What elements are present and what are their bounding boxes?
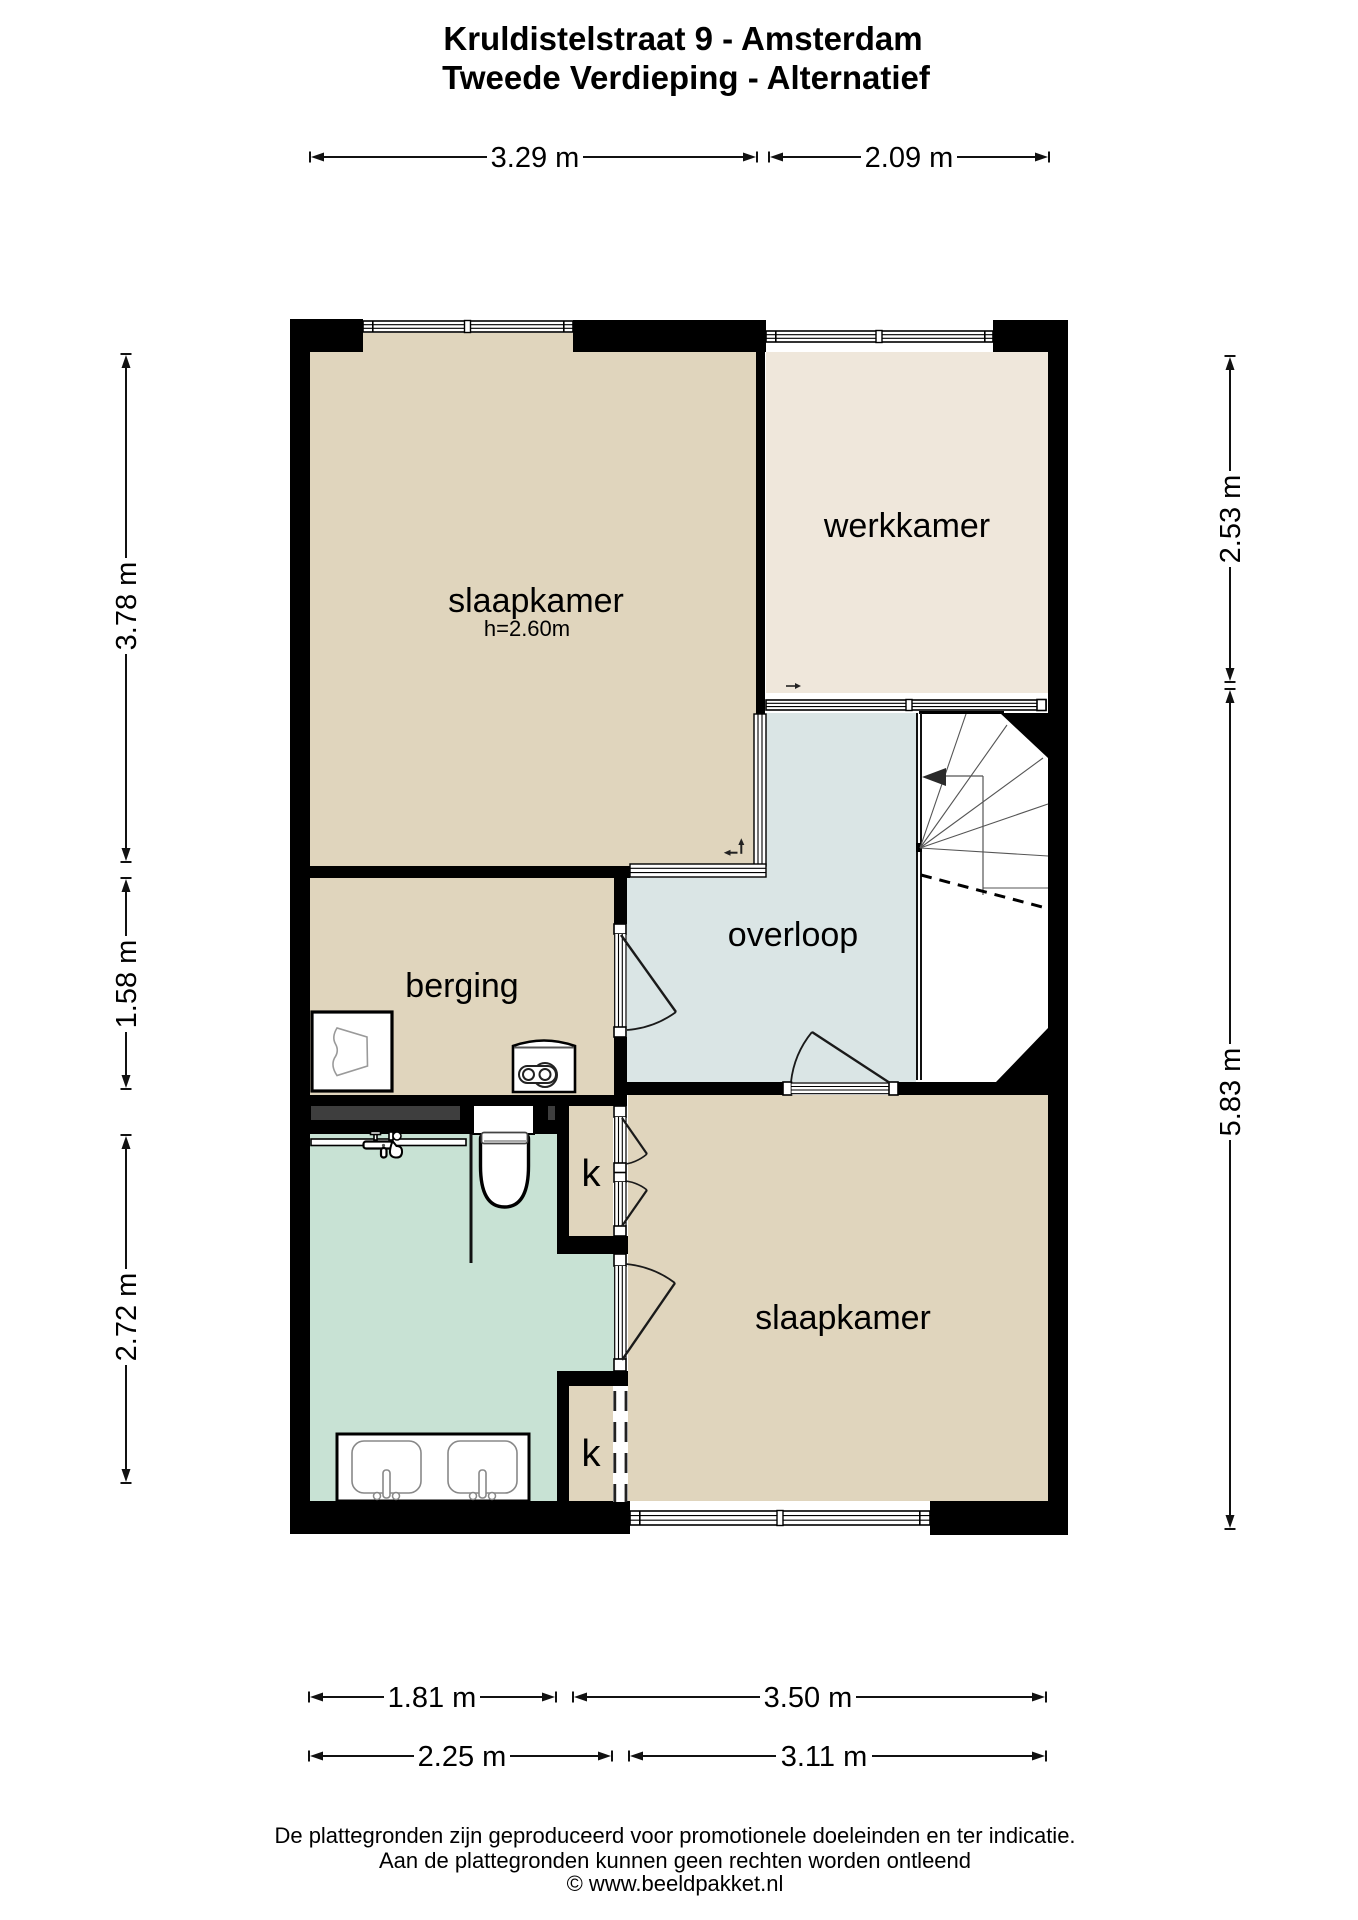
svg-text:Aan de plattegronden kunnen ge: Aan de plattegronden kunnen geen rechten… <box>379 1848 971 1873</box>
svg-text:3.78 m: 3.78 m <box>111 562 143 651</box>
svg-text:De plattegronden zijn geproduc: De plattegronden zijn geproduceerd voor … <box>274 1823 1075 1848</box>
svg-text:slaapkamer: slaapkamer <box>448 582 624 620</box>
svg-text:© www.beeldpakket.nl: © www.beeldpakket.nl <box>567 1871 784 1896</box>
svg-text:3.11 m: 3.11 m <box>781 1741 868 1773</box>
svg-text:2.53 m: 2.53 m <box>1215 475 1247 564</box>
svg-text:1.58 m: 1.58 m <box>111 940 143 1029</box>
svg-text:h=2.60m: h=2.60m <box>484 616 570 641</box>
svg-text:Tweede Verdieping - Alternatie: Tweede Verdieping - Alternatief <box>442 59 931 96</box>
svg-text:k: k <box>582 1153 602 1195</box>
svg-text:berging: berging <box>405 967 518 1005</box>
svg-text:slaapkamer: slaapkamer <box>755 1299 931 1337</box>
svg-text:Kruldistelstraat 9 - Amsterdam: Kruldistelstraat 9 - Amsterdam <box>443 20 922 57</box>
svg-text:3.29 m: 3.29 m <box>491 142 580 174</box>
svg-text:k: k <box>582 1433 602 1475</box>
svg-text:5.83 m: 5.83 m <box>1215 1048 1247 1137</box>
svg-text:werkkamer: werkkamer <box>823 507 990 545</box>
svg-text:2.72 m: 2.72 m <box>111 1273 143 1362</box>
svg-text:2.25 m: 2.25 m <box>418 1741 507 1773</box>
svg-text:1.81 m: 1.81 m <box>388 1682 477 1714</box>
svg-text:3.50 m: 3.50 m <box>764 1682 853 1714</box>
svg-text:overloop: overloop <box>728 916 858 954</box>
svg-text:2.09 m: 2.09 m <box>865 142 954 174</box>
